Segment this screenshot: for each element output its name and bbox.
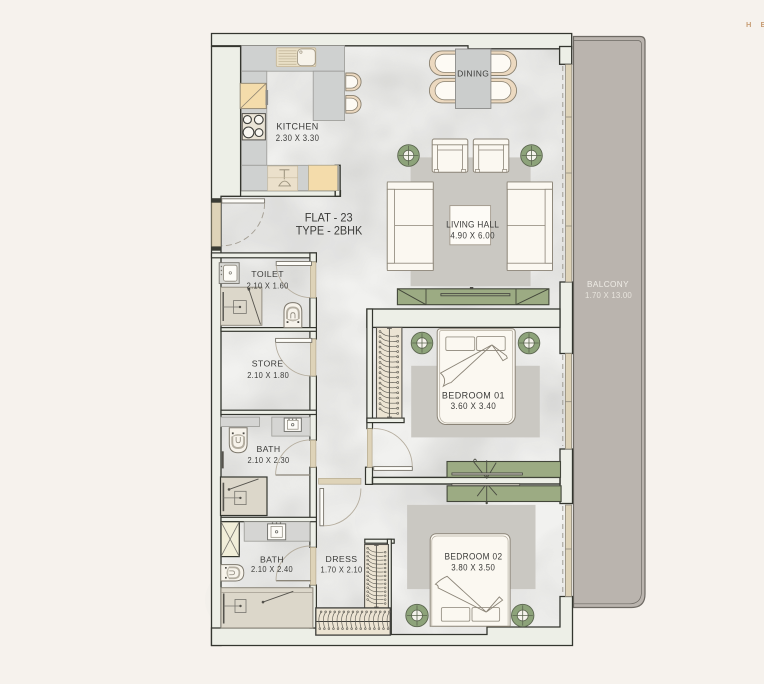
svg-text:1.70 X 2.10: 1.70 X 2.10 [321, 564, 363, 574]
svg-text:2.30 X 3.30: 2.30 X 3.30 [276, 133, 320, 143]
svg-text:3.80 X 3.50: 3.80 X 3.50 [451, 562, 495, 572]
svg-text:BALCONY: BALCONY [587, 279, 629, 289]
svg-text:2.10 X 2.40: 2.10 X 2.40 [251, 564, 293, 574]
svg-text:1.70 X 13.00: 1.70 X 13.00 [585, 291, 632, 300]
svg-text:DRESS: DRESS [326, 554, 358, 564]
svg-text:BATH: BATH [256, 444, 280, 454]
svg-text:KITCHEN: KITCHEN [276, 122, 318, 132]
svg-text:DINING: DINING [457, 69, 489, 79]
svg-text:4.90 X 6.00: 4.90 X 6.00 [450, 231, 495, 241]
svg-text:2.10 X 1.80: 2.10 X 1.80 [247, 370, 289, 380]
svg-text:STORE: STORE [252, 359, 284, 369]
svg-text:3.60 X 3.40: 3.60 X 3.40 [451, 401, 497, 411]
svg-text:2.10 X 1.60: 2.10 X 1.60 [247, 280, 289, 290]
svg-text:2.10 X 2.30: 2.10 X 2.30 [248, 455, 290, 465]
svg-text:BATH: BATH [260, 554, 284, 564]
svg-text:BEDROOM 01: BEDROOM 01 [442, 391, 505, 401]
svg-text:FLAT - 23: FLAT - 23 [305, 210, 353, 224]
svg-text:LIVING HALL: LIVING HALL [446, 220, 499, 230]
svg-text:TOILET: TOILET [251, 269, 284, 279]
svg-text:H E L: H E L [746, 20, 764, 29]
svg-text:BEDROOM 02: BEDROOM 02 [445, 551, 503, 561]
svg-text:TYPE - 2BHK: TYPE - 2BHK [296, 223, 363, 237]
